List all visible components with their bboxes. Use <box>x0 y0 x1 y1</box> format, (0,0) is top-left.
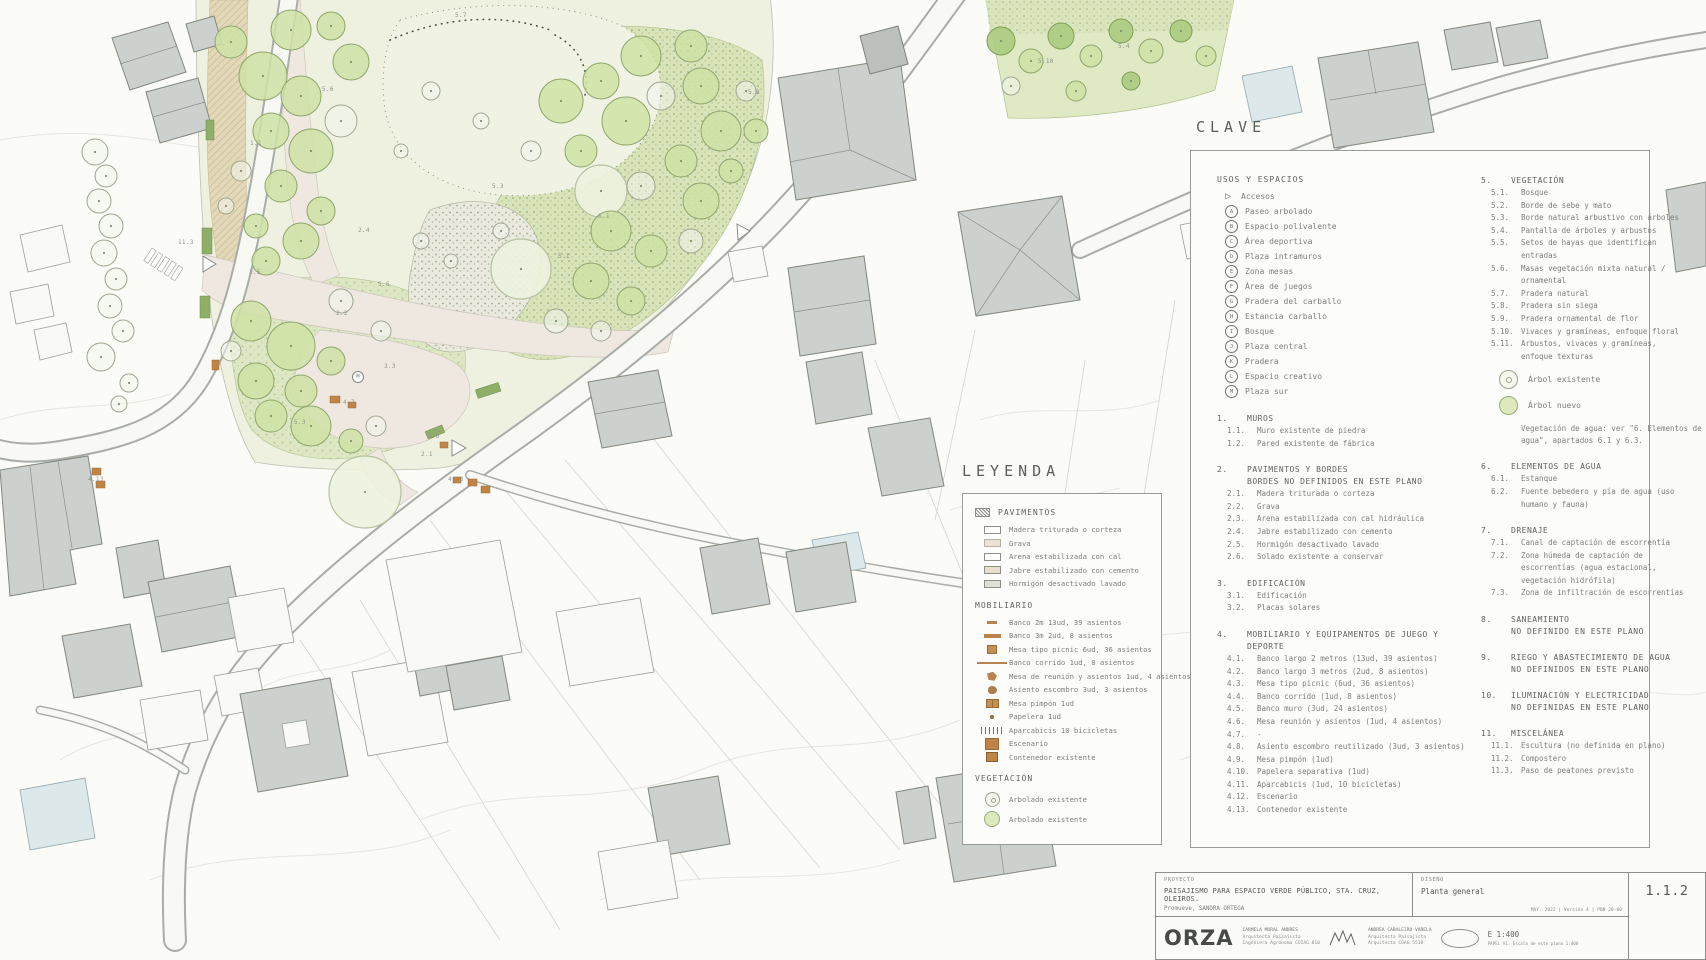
clave-section-header: 8.SANEAMIENTONO DEFINIDO EN ESTE PLANO <box>1481 614 1687 638</box>
legend-item-label: Mesa pimpón 1ud <box>1009 699 1074 708</box>
rect-white-swatch-icon <box>984 526 1001 534</box>
clave-item: 4.6.Mesa reunión y asientos (1ud, 4 asie… <box>1227 716 1469 729</box>
tree-trunk-dot <box>100 356 102 358</box>
legend-item-label: Banco corrido 1ud, 8 asientos <box>1009 658 1135 667</box>
person1-credit: CARMELA MORAL ANDRES Arquitecta Paisajis… <box>1243 928 1320 947</box>
legend-item-label: Arbolado existente <box>1009 795 1087 804</box>
scale-block: E 1:400 PAPEL A1. Escala de este plano 1… <box>1488 930 1579 946</box>
legend-item-label: Arbolado existente <box>1009 815 1087 824</box>
legend-item: Arbolado existente <box>975 809 1153 829</box>
scale-note: PAPEL A1. Escala de este plano 1:400 <box>1488 941 1579 946</box>
usos-item: GPradera del carballo <box>1217 294 1469 309</box>
usos-label: Plaza sur <box>1245 387 1288 396</box>
tree-trunk-dot <box>720 130 722 132</box>
legend-item: Madera triturada o corteza <box>975 523 1153 537</box>
mountain-squiggle-icon <box>1329 929 1359 947</box>
legend-item: Jabre estabilizado con cemento <box>975 564 1153 578</box>
rect-white-swatch-icon <box>984 553 1001 561</box>
usos-list: ▷AccesosAPaseo arboladoBEspacio polivale… <box>1217 189 1469 399</box>
new-tree-icon <box>1499 396 1518 415</box>
tree-trunk-dot <box>530 150 532 152</box>
usos-label: Espacio polivalente <box>1245 222 1337 231</box>
usos-item: JPlaza central <box>1217 339 1469 354</box>
tree-trunk-dot <box>1090 55 1092 57</box>
tree-trunk-dot <box>630 300 632 302</box>
rect-grava-swatch-icon <box>984 539 1001 547</box>
clave-section-header: 2.PAVIMENTOS Y BORDESBORDES NO DEFINIDOS… <box>1217 464 1469 488</box>
tree-new-swatch-icon <box>984 811 1000 827</box>
tree-trunk-dot <box>300 240 302 242</box>
tree-trunk-dot <box>115 278 117 280</box>
clave-item: 11.1.Escultura (no definida en plano) <box>1491 740 1687 753</box>
legend-item-label: Escenario <box>1009 739 1048 748</box>
tree-trunk-dot <box>350 61 352 63</box>
tree-trunk-dot <box>640 185 642 187</box>
usos-key-circle: D <box>1225 250 1238 263</box>
legend-group-heading: VEGETACIÓN <box>975 774 1153 783</box>
tree-trunk-dot <box>1150 50 1152 52</box>
rect-hormigon-swatch-icon <box>984 580 1001 588</box>
usos-label: Plaza central <box>1245 342 1308 351</box>
tree-trunk-dot <box>560 100 562 102</box>
clave-left-column: USOS Y ESPACIOS ▷AccesosAPaseo arboladoB… <box>1217 175 1469 817</box>
project-cell: PROYECTO PAISAJISMO PARA ESPACIO VERDE P… <box>1156 873 1412 916</box>
clave-item: 7.3.Zona de infiltración de escorrentías <box>1491 587 1687 600</box>
usos-key-circle: C <box>1225 235 1238 248</box>
clave-item: 5.8.Pradera sin siega <box>1491 300 1687 313</box>
tree-trunk-dot <box>600 330 602 332</box>
tree-trunk-dot <box>270 130 272 132</box>
bench3-swatch-icon <box>984 634 1001 638</box>
clave-item: 2.5.Hormigón desactivado lavado <box>1227 539 1469 552</box>
clave-section-header: 7.DRENAJE <box>1481 525 1687 537</box>
clave-section: 6.ELEMENTOS DE AGUA6.1.Estanque6.2.Fuent… <box>1481 461 1687 511</box>
title-block-bottom-row: ORZA CARMELA MORAL ANDRES Arquitecta Pai… <box>1156 916 1628 959</box>
clave-item: 4.9.Mesa pimpón (1ud) <box>1227 754 1469 767</box>
clave-item: 7.1.Canal de captación de escorrentía <box>1491 537 1687 550</box>
tree-trunk-dot <box>730 170 732 172</box>
tree-trunk-dot <box>265 260 267 262</box>
legend-item: Arbolado existente <box>975 789 1153 809</box>
usos-key-circle: K <box>1225 355 1238 368</box>
usos-item: EZona mesas <box>1217 264 1469 279</box>
usos-key-circle: E <box>1225 265 1238 278</box>
usos-label: Pradera del carballo <box>1245 297 1341 306</box>
tree-trunk-dot <box>103 252 105 254</box>
tree-trunk-dot <box>350 440 352 442</box>
clave-section-header: 10.ILUMINACIÓN Y ELECTRICIDADNO DEFINIDA… <box>1481 690 1687 714</box>
tree-trunk-dot <box>1205 55 1207 57</box>
papelera-swatch-icon <box>990 715 994 719</box>
legend-item: Aparcabicis 10 bicicletas <box>975 724 1153 738</box>
legend-group: PAVIMENTOSMadera triturada o cortezaGrav… <box>975 508 1153 591</box>
tree-trunk-dot <box>590 280 592 282</box>
tree-trunk-dot <box>128 382 130 384</box>
clave-item: 4.11.Aparcabicis (1ud, 10 bicicletas) <box>1227 779 1469 792</box>
usos-label: Espacio creativo <box>1245 372 1322 381</box>
tree-trunk-dot <box>340 300 342 302</box>
tree-trunk-dot <box>98 200 100 202</box>
tree-trunk-dot <box>1000 40 1002 42</box>
tree-trunk-dot <box>420 240 422 242</box>
tree-trunk-dot <box>280 185 282 187</box>
clave-item: 6.1.Estanque <box>1491 473 1687 486</box>
tree-trunk-dot <box>290 29 292 31</box>
clave-item: 4.12.Escenario <box>1227 791 1469 804</box>
usos-item: FÁrea de juegos <box>1217 279 1469 294</box>
usos-key-circle: F <box>1225 280 1238 293</box>
clave-item: 4.7.- <box>1227 729 1469 742</box>
clave-section-header: 11.MISCELÁNEA <box>1481 728 1687 740</box>
clave-section: 7.DRENAJE7.1.Canal de captación de escor… <box>1481 525 1687 600</box>
legend-item: Asiento escombro 3ud, 3 asientos <box>975 683 1153 697</box>
clave-section: 8.SANEAMIENTONO DEFINIDO EN ESTE PLANO <box>1481 614 1687 638</box>
usos-item: MPlaza sur <box>1217 384 1469 399</box>
clave-item: 4.4.Banco corrido (1ud, 8 asientos) <box>1227 691 1469 704</box>
tree-trunk-dot <box>1075 90 1077 92</box>
usos-label: Paseo arbolado <box>1245 207 1312 216</box>
legend-item: Banco 3m 2ud, 8 asientos <box>975 629 1153 643</box>
tree-trunk-dot <box>255 380 257 382</box>
picnic-swatch-icon <box>987 645 997 654</box>
legend-item-label: Hormigón desactivado lavado <box>1009 579 1126 588</box>
clave-item: 2.2.Grava <box>1227 501 1469 514</box>
tree-trunk-dot <box>640 55 642 57</box>
usos-item: IBosque <box>1217 324 1469 339</box>
clave-section-header: 6.ELEMENTOS DE AGUA <box>1481 461 1687 473</box>
legend-item-label: Mesa tipo picnic 6ud, 36 asientos <box>1009 645 1152 654</box>
bicis-swatch-icon <box>981 727 1003 734</box>
tree-trunk-dot <box>430 90 432 92</box>
clave-section: 10.ILUMINACIÓN Y ELECTRICIDADNO DEFINIDA… <box>1481 690 1687 714</box>
usos-item: BEspacio polivalente <box>1217 219 1469 234</box>
revision-text: MAY. 2022 | Versión 4 | PBN 20-00 <box>1531 908 1622 913</box>
usos-key-circle: L <box>1225 370 1238 383</box>
legend-item-label: Banco 2m 13ud, 39 asientos <box>1009 618 1122 627</box>
sheet-number-cell: 1.1.2 <box>1628 873 1705 959</box>
legend-item-label: Aparcabicis 10 bicicletas <box>1009 726 1117 735</box>
clave-section: 1.MUROS1.1.Muro existente de piedra1.2.P… <box>1217 413 1469 450</box>
person2-credit: ANDREA CABALEIRO VARELA Arquitecta Paisa… <box>1368 928 1432 947</box>
tree-trunk-dot <box>600 80 602 82</box>
usos-item: CÁrea deportiva <box>1217 234 1469 249</box>
legend-item-label: Mesa de reunión y asientos 1ud, 4 asient… <box>1009 672 1191 681</box>
legend-item-label: Jabre estabilizado con cemento <box>1009 566 1139 575</box>
tree-existing-swatch-icon <box>985 792 1000 807</box>
usos-item: KPradera <box>1217 354 1469 369</box>
tree-trunk-dot <box>1120 30 1122 32</box>
clave-section-header: 4.MOBILIARIO Y EQUIPAMENTOS DE JUEGO Y D… <box>1217 629 1469 653</box>
clave-item: 4.8.Asiento escombro reutilizado (3ud, 3… <box>1227 741 1469 754</box>
design-title: Planta general <box>1421 887 1620 896</box>
legend-item-label: Banco 3m 2ud, 8 asientos <box>1009 631 1113 640</box>
project-label: PROYECTO <box>1164 877 1404 883</box>
usos-key-circle: H <box>1225 310 1238 323</box>
tree-existing-row: Árbol existente <box>1499 370 1687 389</box>
clave-item: 5.7.Pradera natural <box>1491 288 1687 301</box>
clave-item: 1.1.Muro existente de piedra <box>1227 425 1469 438</box>
tree-trunk-dot <box>330 360 332 362</box>
tree-trunk-dot <box>262 75 264 77</box>
usos-heading: USOS Y ESPACIOS <box>1217 175 1469 184</box>
legend-group-heading: PAVIMENTOS <box>975 508 1153 517</box>
tree-trunk-dot <box>230 350 232 352</box>
clave-item: 11.2.Compostero <box>1491 753 1687 766</box>
legend-item: Banco corrido 1ud, 8 asientos <box>975 656 1153 670</box>
legend-item: Mesa de reunión y asientos 1ud, 4 asient… <box>975 670 1153 684</box>
legend-item-label: Papelera 1ud <box>1009 712 1061 721</box>
clave-item: 1.2.Pared existente de fábrica <box>1227 438 1469 451</box>
usos-key-circle: M <box>1225 385 1238 398</box>
clave-item: 5.3.Borde natural arbustivo con árboles <box>1491 212 1687 225</box>
legend-group-heading: MOBILIARIO <box>975 601 1153 610</box>
legend-item: Escenario <box>975 737 1153 751</box>
tree-trunk-dot <box>375 425 377 427</box>
tree-trunk-dot <box>580 150 582 152</box>
tree-trunk-dot <box>650 250 652 252</box>
clave-item: 4.10.Papelera separativa (1ud) <box>1227 766 1469 779</box>
clave-item: 4.2.Banco largo 3 metros (2ud, 8 asiento… <box>1227 666 1469 679</box>
tree-trunk-dot <box>94 151 96 153</box>
usos-key-circle: J <box>1225 340 1238 353</box>
tree-trunk-dot <box>118 403 120 405</box>
legend-item: Grava <box>975 537 1153 551</box>
tree-trunk-dot <box>225 205 227 207</box>
clave-item: 11.3.Paso de peatones previsto <box>1491 765 1687 778</box>
tree-trunk-dot <box>690 45 692 47</box>
tree-trunk-dot <box>1010 85 1012 87</box>
clave-section: 4.MOBILIARIO Y EQUIPAMENTOS DE JUEGO Y D… <box>1217 629 1469 817</box>
bench2-swatch-icon <box>987 621 997 625</box>
usos-key-circle: B <box>1225 220 1238 233</box>
tree-trunk-dot <box>555 320 557 322</box>
existing-tree-icon <box>1499 370 1518 389</box>
clave-section: 11.MISCELÁNEA11.1.Escultura (no definida… <box>1481 728 1687 778</box>
tree-trunk-dot <box>660 95 662 97</box>
tree-trunk-dot <box>600 190 602 192</box>
plan-sheet: 5.75.61.15.32.411.33.55.65.82.23.34.75.3… <box>0 0 1706 960</box>
pimpon-swatch-icon <box>986 699 999 708</box>
tree-trunk-dot <box>300 95 302 97</box>
access-triangle-icon: ▷ <box>1225 192 1236 202</box>
project-title: PAISAJISMO PARA ESPACIO VERDE PÚBLICO, S… <box>1164 887 1404 903</box>
tree-trunk-dot <box>270 415 272 417</box>
clave-item: 5.11.Arbustos, vivaces y gramíneas, enfo… <box>1491 338 1687 363</box>
tree-trunk-dot <box>110 225 112 227</box>
escombro-swatch-icon <box>988 686 997 694</box>
clave-item: 2.6.Solado existente a conservar <box>1227 551 1469 564</box>
legend-group: MOBILIARIOBanco 2m 13ud, 39 asientosBanc… <box>975 601 1153 765</box>
tree-trunk-dot <box>1130 80 1132 82</box>
building-profile-icon <box>1654 937 1680 953</box>
clave-section-header: 3.EDIFICACIÓN <box>1217 578 1469 590</box>
clave-item: 5.6.Masas vegetación mixta natural / orn… <box>1491 263 1687 288</box>
design-cell: DISEÑO Planta general MAY. 2022 | Versió… <box>1412 873 1628 916</box>
leyenda-title: LEYENDA <box>962 462 1060 480</box>
legend-item-label: Asiento escombro 3ud, 3 asientos <box>1009 685 1147 694</box>
corrido-swatch-icon <box>977 662 1007 665</box>
sheet-number: 1.1.2 <box>1645 883 1688 899</box>
tree-trunk-dot <box>300 390 302 392</box>
clave-item: 4.13.Contenedor existente <box>1227 804 1469 817</box>
escenario-swatch-icon <box>985 738 999 750</box>
tree-trunk-dot <box>310 150 312 152</box>
tree-trunk-dot <box>340 120 342 122</box>
tree-trunk-dot <box>230 41 232 43</box>
tree-trunk-dot <box>500 230 502 232</box>
clave-item: 4.3.Mesa tipo picnic (6ud, 36 asientos) <box>1227 678 1469 691</box>
clave-item: 5.10.Vivaces y gramíneas, enfoque floral <box>1491 326 1687 339</box>
tree-trunk-dot <box>240 170 242 172</box>
tree-trunk-dot <box>1180 30 1182 32</box>
clave-section-header: 1.MUROS <box>1217 413 1469 425</box>
tree-trunk-dot <box>320 210 322 212</box>
clave-item: 3.1.Edificación <box>1227 590 1469 603</box>
usos-label: Zona mesas <box>1245 267 1293 276</box>
clave-item: 5.2.Borde de sebe y mato <box>1491 200 1687 213</box>
tree-trunk-dot <box>680 160 682 162</box>
contenedor-swatch-icon <box>986 752 998 762</box>
hatch-swatch-icon <box>975 508 990 517</box>
usos-label: Plaza intramuros <box>1245 252 1322 261</box>
clave-item: 7.2.Zona húmeda de captación de escorren… <box>1491 550 1687 588</box>
reunion-swatch-icon <box>987 672 997 681</box>
tree-trunk-dot <box>690 240 692 242</box>
usos-label: Accesos <box>1241 192 1275 201</box>
legend-item-label: Contenedor existente <box>1009 753 1096 762</box>
clave-item: 5.5.Setos de hayas que identifican entra… <box>1491 237 1687 262</box>
tree-trunk-dot <box>330 25 332 27</box>
usos-label: Pradera <box>1245 357 1279 366</box>
water-vegetation-note: Vegetación de agua: ver "6. Elementos de… <box>1521 423 1706 447</box>
tree-trunk-dot <box>105 175 107 177</box>
clave-section-header: 9.RIEGO Y ABASTECIMIENTO DE AGUANO DEFIN… <box>1481 652 1687 676</box>
usos-access-row: ▷Accesos <box>1217 189 1469 204</box>
design-label: DISEÑO <box>1421 877 1620 883</box>
clave-section: 5.VEGETACIÓN5.1.Bosque5.2.Borde de sebe … <box>1481 175 1687 363</box>
rect-jabre-swatch-icon <box>984 566 1001 574</box>
scale-value: E 1:400 <box>1488 930 1579 939</box>
tree-trunk-dot <box>700 200 702 202</box>
legend-item: Banco 2m 13ud, 39 asientos <box>975 616 1153 630</box>
clave-panel: USOS Y ESPACIOS ▷AccesosAPaseo arboladoB… <box>1190 150 1650 848</box>
tree-trunk-dot <box>480 120 482 122</box>
tree-trunk-dot <box>1030 60 1032 62</box>
clave-item: 4.1.Banco largo 2 metros (13ud, 39 asien… <box>1227 653 1469 666</box>
tree-trunk-dot <box>520 268 522 270</box>
leyenda-panel: PAVIMENTOSMadera triturada o cortezaGrav… <box>962 493 1162 845</box>
tree-trunk-dot <box>450 260 452 262</box>
tree-trunk-dot <box>109 305 111 307</box>
tree-trunk-dot <box>700 85 702 87</box>
clave-section-header: 5.VEGETACIÓN <box>1481 175 1687 187</box>
tree-trunk-dot <box>755 130 757 132</box>
clave-item: 4.5.Banco muro (3ud, 24 asientos) <box>1227 703 1469 716</box>
promoter: Promueve, SANDRA ORTEGA <box>1164 906 1404 912</box>
legend-item: Mesa tipo picnic 6ud, 36 asientos <box>975 643 1153 657</box>
usos-item: HEstancia carballo <box>1217 309 1469 324</box>
tree-trunk-dot <box>380 330 382 332</box>
usos-key-circle: I <box>1225 325 1238 338</box>
clave-item: 2.3.Arena estabilizada con cal hidráulic… <box>1227 513 1469 526</box>
clave-title: CLAVE <box>1196 118 1266 136</box>
clave-item: 2.1.Madera triturada o corteza <box>1227 488 1469 501</box>
usos-item: APaseo arbolado <box>1217 204 1469 219</box>
tree-trunk-dot <box>364 491 366 493</box>
clave-section: 9.RIEGO Y ABASTECIMIENTO DE AGUANO DEFIN… <box>1481 652 1687 676</box>
clave-item: 5.1.Bosque <box>1491 187 1687 200</box>
tree-trunk-dot <box>400 150 402 152</box>
usos-item: LEspacio creativo <box>1217 369 1469 384</box>
legend-item: Hormigón desactivado lavado <box>975 577 1153 591</box>
legend-item: Mesa pimpón 1ud <box>975 697 1153 711</box>
clave-item: 3.2.Placas solares <box>1227 602 1469 615</box>
tree-trunk-dot <box>1060 35 1062 37</box>
clave-item: 5.9.Pradera ornamental de flor <box>1491 313 1687 326</box>
tree-trunk-dot <box>310 425 312 427</box>
stamp-oval <box>1441 929 1479 948</box>
usos-label: Bosque <box>1245 327 1274 336</box>
firm-logo: ORZA <box>1164 926 1234 950</box>
tree-trunk-dot <box>625 120 627 122</box>
clave-section: 2.PAVIMENTOS Y BORDESBORDES NO DEFINIDOS… <box>1217 464 1469 564</box>
legend-item: Arena estabilizada con cal <box>975 550 1153 564</box>
tree-trunk-dot <box>745 90 747 92</box>
usos-key-circle: A <box>1225 205 1238 218</box>
usos-item: DPlaza intramuros <box>1217 249 1469 264</box>
clave-item: 2.4.Jabre estabilizado con cemento <box>1227 526 1469 539</box>
tree-trunk-dot <box>122 330 124 332</box>
legend-item: Papelera 1ud <box>975 710 1153 724</box>
usos-label: Área deportiva <box>1245 237 1312 246</box>
title-block: PROYECTO PAISAJISMO PARA ESPACIO VERDE P… <box>1155 872 1706 960</box>
clave-right-column: 5.VEGETACIÓN5.1.Bosque5.2.Borde de sebe … <box>1481 175 1687 817</box>
clave-section: 3.EDIFICACIÓN3.1.Edificación3.2.Placas s… <box>1217 578 1469 615</box>
tree-trunk-dot <box>290 345 292 347</box>
tree-new-row: Árbol nuevo <box>1499 396 1687 415</box>
tree-trunk-dot <box>255 225 257 227</box>
tree-trunk-dot <box>610 230 612 232</box>
legend-item-label: Grava <box>1009 539 1031 548</box>
usos-label: Área de juegos <box>1245 282 1312 291</box>
legend-item-label: Madera triturada o corteza <box>1009 525 1122 534</box>
legend-item: Contenedor existente <box>975 751 1153 765</box>
legend-group: VEGETACIÓNArbolado existenteArbolado exi… <box>975 774 1153 829</box>
usos-key-circle: G <box>1225 295 1238 308</box>
tree-trunk-dot <box>250 320 252 322</box>
clave-item: 6.2.Fuente bebedero y pía de agua (uso h… <box>1491 486 1687 511</box>
legend-item-label: Arena estabilizada con cal <box>1009 552 1122 561</box>
usos-label: Estancia carballo <box>1245 312 1327 321</box>
clave-item: 5.4.Pantalla de árboles y arbustos <box>1491 225 1687 238</box>
